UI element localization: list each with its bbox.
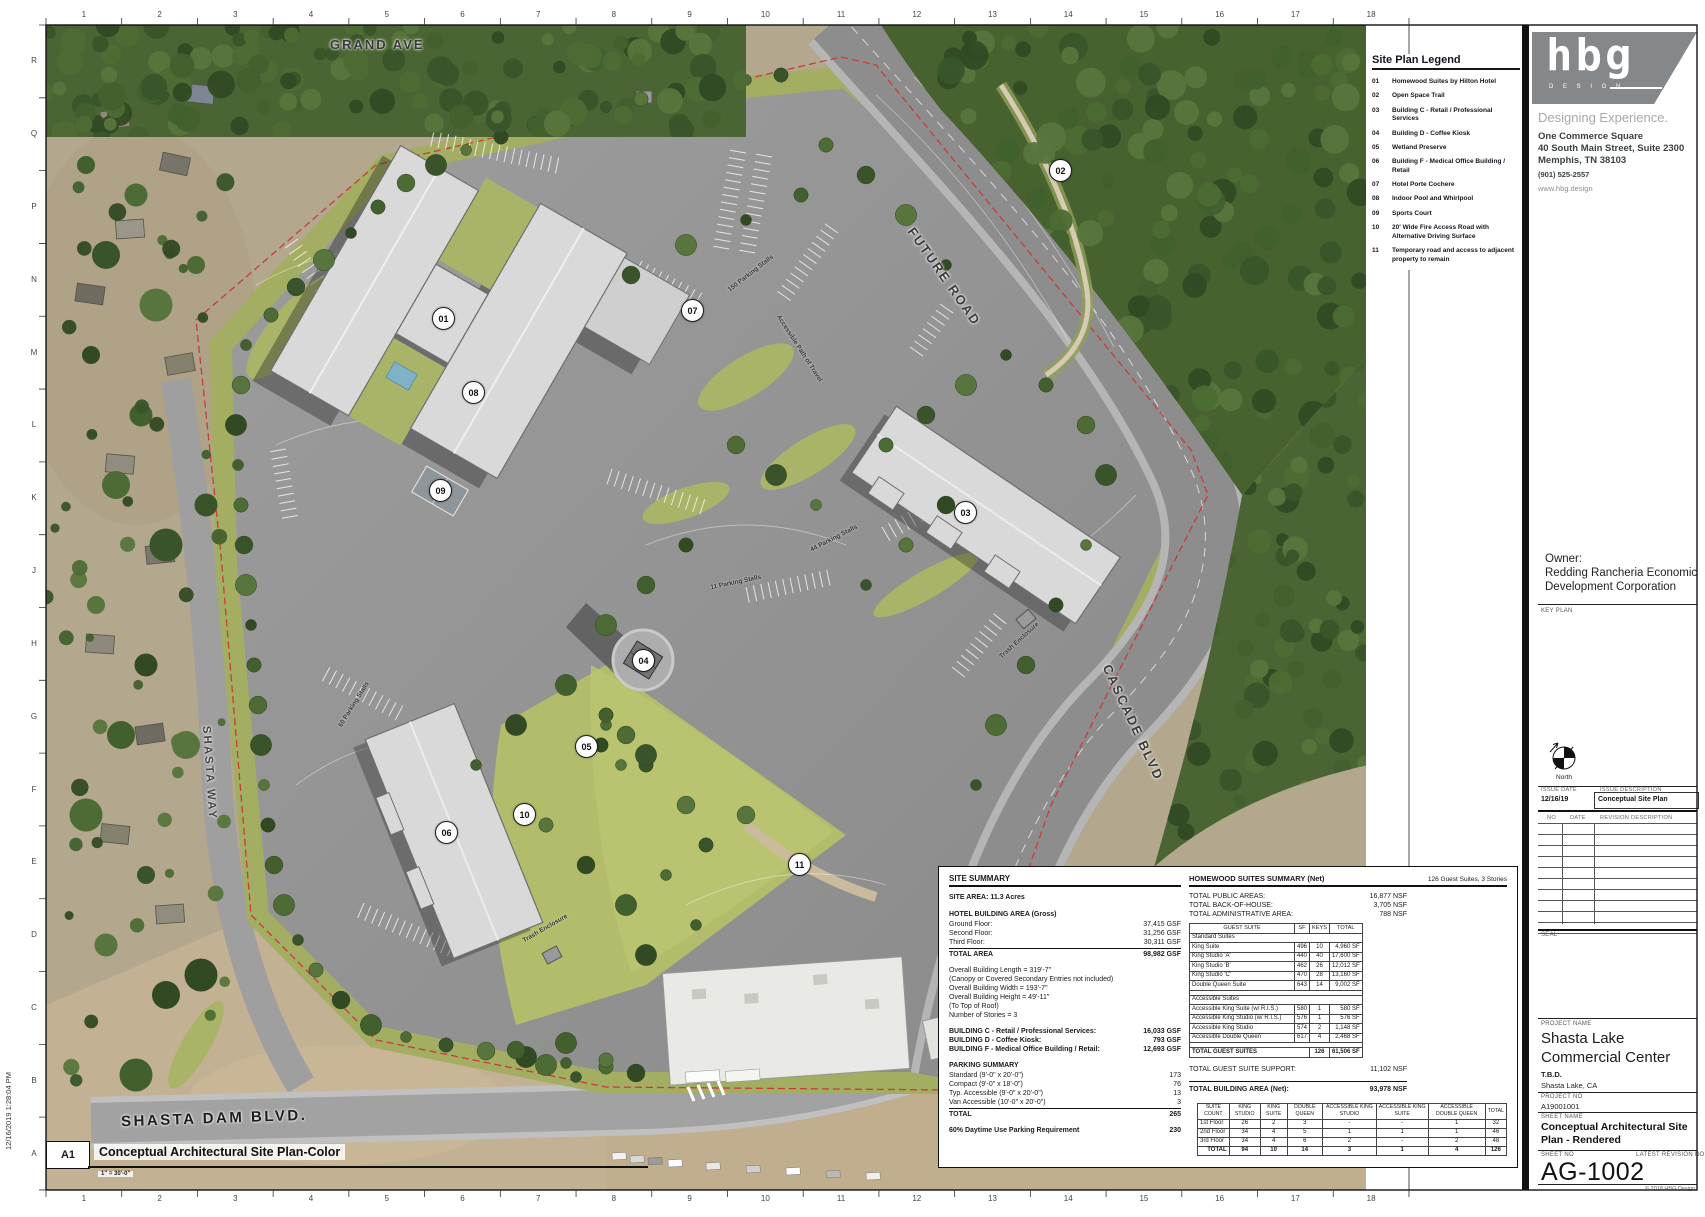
legend-item: 05Wetland Preserve [1372, 144, 1520, 153]
suite-count-cell: 48 [1485, 1137, 1506, 1146]
grid-col-label: 11 [833, 1194, 849, 1203]
suite-count-cell: 3rd Floor [1198, 1137, 1230, 1146]
guest-table-cell: 28 [1310, 971, 1330, 981]
hbg-logo-text: hbg [1546, 30, 1634, 81]
suite-count-cell: 5 [1287, 1128, 1322, 1137]
legend-item-label: Sports Court [1392, 210, 1520, 219]
grid-col-label: 4 [303, 1194, 319, 1203]
guest-table-header: KEYS [1310, 924, 1330, 934]
legend-item-number: 03 [1372, 107, 1392, 125]
legend-item-number: 09 [1372, 210, 1392, 219]
guest-table-row: King Suite496104,960 SF [1190, 943, 1363, 953]
grid-col-label: 12 [909, 10, 925, 19]
issue-date-header: ISSUE DATE [1541, 787, 1577, 793]
summary-label: TOTAL PUBLIC AREAS: [1189, 892, 1265, 901]
summary-value: 788 NSF [1379, 910, 1407, 919]
issue-date-value: 12/16/19 [1541, 796, 1568, 803]
revision-date-header: DATE [1570, 815, 1586, 821]
plan-marker: 01 [432, 307, 455, 330]
suite-count-cell: 1 [1376, 1128, 1428, 1137]
parking-total-value: 265 [1169, 1110, 1181, 1119]
guest-table-cell: Accessible King Studio [1190, 1024, 1295, 1034]
guest-table-row: Accessible King Studio57421,148 SF [1190, 1024, 1363, 1034]
grid-col-label: 13 [985, 1194, 1001, 1203]
suite-support-row: TOTAL GUEST SUITE SUPPORT: 11,102 NSF [1189, 1065, 1407, 1074]
legend-item-number: 08 [1372, 195, 1392, 204]
seal-label: SEAL [1541, 932, 1558, 938]
copyright: © 2018 HBG Design [1645, 1186, 1695, 1192]
key-plan-divider [1538, 604, 1697, 605]
guest-table-cell: King Suite [1190, 943, 1295, 953]
guest-table-cell: 1,148 SF [1329, 1024, 1362, 1034]
suite-count-row: 2nd Floor344511146 [1198, 1128, 1507, 1137]
hotel-area-header: HOTEL BUILDING AREA (Gross) [949, 910, 1181, 920]
summary-value: 37,415 GSF [1143, 920, 1181, 929]
dims-list: Overall Building Length = 319'-7"(Canopy… [949, 966, 1181, 1020]
project-tbd: T.B.D. [1541, 1070, 1562, 1079]
suite-count-cell: 1 [1376, 1146, 1428, 1155]
plan-marker: 08 [462, 381, 485, 404]
suite-count-cell: 1 [1428, 1119, 1485, 1128]
floors-rows: Ground Floor:37,415 GSFSecond Floor:31,2… [949, 920, 1181, 947]
suite-count-header: ACCESSIBLE DOUBLE QUEEN [1428, 1103, 1485, 1119]
owner-line2: Development Corporation [1545, 580, 1697, 594]
owner-line1: Redding Rancheria Economic [1545, 566, 1697, 580]
total-area-label: TOTAL AREA [949, 950, 993, 959]
summary-box: SITE SUMMARY SITE AREA: 11.3 Acres HOTEL… [938, 866, 1518, 1168]
plan-marker: 03 [954, 501, 977, 524]
guest-total-sf: 61,506 SF [1329, 1048, 1362, 1058]
daytime-value: 230 [1169, 1126, 1181, 1135]
guest-total-label: TOTAL GUEST SUITES [1190, 1048, 1310, 1058]
suite-count-cell: 126 [1485, 1146, 1506, 1155]
drawing-title-underline [88, 1166, 648, 1168]
grid-col-label: 16 [1212, 1194, 1228, 1203]
plan-marker: 10 [513, 803, 536, 826]
suite-count-cell: 6 [1287, 1137, 1322, 1146]
street-label: CASCADE BLVD [1100, 662, 1167, 783]
summary-value: 16,877 NSF [1370, 892, 1407, 901]
plan-marker: 11 [788, 853, 811, 876]
suite-count-cell: 3 [1287, 1119, 1322, 1128]
guest-table-header: SF [1295, 924, 1310, 934]
firm-address-line1: One Commerce Square [1538, 131, 1684, 143]
guest-table-cell: King Studio 'A' [1190, 952, 1295, 962]
summary-value: 31,256 GSF [1143, 929, 1181, 938]
guest-table-cell: 576 SF [1329, 1014, 1362, 1024]
suite-count-header: KING SUITE [1260, 1103, 1287, 1119]
summary-label: BUILDING D - Coffee Kiosk: [949, 1036, 1041, 1045]
guest-table-cell: 2,468 SF [1329, 1033, 1362, 1043]
project-location: Shasta Lake, CA [1541, 1081, 1597, 1090]
grid-col-label: 1 [76, 1194, 92, 1203]
summary-value: 16,033 GSF [1143, 1027, 1181, 1036]
guest-table-cell: 9,002 SF [1329, 981, 1362, 991]
summary-value: 3 [1177, 1098, 1181, 1107]
street-label: SHASTA DAM BLVD. [121, 1107, 308, 1130]
guest-table-cell: 574 [1295, 1024, 1310, 1034]
drawing-title: Conceptual Architectural Site Plan-Color [94, 1144, 345, 1160]
summary-row: BUILDING F - Medical Office Building / R… [949, 1045, 1181, 1054]
summary-row: TOTAL ADMINISTRATIVE AREA:788 NSF [1189, 910, 1407, 919]
plan-note: 44 Parking Stalls [809, 524, 859, 554]
issue-bottom-line [1538, 810, 1697, 812]
summary-value: 12,693 GSF [1143, 1045, 1181, 1054]
guest-total-keys: 126 [1310, 1048, 1330, 1058]
firm-website: www.hbg.design [1538, 184, 1593, 193]
suite-count-row: 1st Floor2623--132 [1198, 1119, 1507, 1128]
grid-col-label: 7 [530, 1194, 546, 1203]
project-no-label: PROJECT NO [1541, 1094, 1583, 1100]
suite-count-cell: 2 [1260, 1119, 1287, 1128]
summary-label: TOTAL ADMINISTRATIVE AREA: [1189, 910, 1293, 919]
street-label: FUTURE ROAD [905, 224, 984, 328]
plan-marker: 09 [429, 479, 452, 502]
suite-count-header: ACCESSIBLE KING STUDIO [1323, 1103, 1377, 1119]
guest-table-cell: 26 [1310, 962, 1330, 972]
project-name-label: PROJECT NAME [1541, 1021, 1592, 1027]
suite-count-cell: - [1323, 1119, 1377, 1128]
guest-table-row: King Studio 'C'4702813,160 SF [1190, 971, 1363, 981]
plan-note: Trash Enclosure [522, 913, 569, 944]
building-total-row: TOTAL BUILDING AREA (Net): 93,978 NSF [1189, 1081, 1407, 1094]
guest-table-cell: 40 [1310, 952, 1330, 962]
grid-row-label: Q [26, 129, 42, 138]
summary-label: Compact (9'-0" x 18'-0") [949, 1080, 1023, 1089]
legend-item-number: 05 [1372, 144, 1392, 153]
hbg-logo: hbg D E S I G N [1532, 32, 1697, 104]
suite-count-cell: 94 [1229, 1146, 1260, 1155]
plan-note: 150 Parking Stalls [727, 254, 775, 294]
grid-row-label: E [26, 857, 42, 866]
guest-table-cell: 13,160 SF [1329, 971, 1362, 981]
grid-row-label: D [26, 930, 42, 939]
grid-col-label: 8 [606, 10, 622, 19]
summary-label: Standard (9'-0" x 20'-0") [949, 1071, 1023, 1080]
grid-col-label: 11 [833, 10, 849, 19]
summary-label: Second Floor: [949, 929, 993, 938]
sheet-number: AG-1002 [1541, 1158, 1645, 1187]
suite-count-cell: 2 [1428, 1137, 1485, 1146]
suite-count-header: DOUBLE QUEEN [1287, 1103, 1322, 1119]
guest-table: GUEST SUITESFKEYSTOTALStandard SuitesKin… [1189, 923, 1363, 1058]
summary-label: Van Accessible (10'-0" x 20'-0") [949, 1098, 1046, 1107]
summary-dim: (To Top of Roof) [949, 1002, 1181, 1011]
summary-value: 76 [1173, 1080, 1181, 1089]
project-name: Shasta Lake Commercial Center [1541, 1029, 1699, 1067]
parking-total-row: TOTAL 265 [949, 1108, 1181, 1119]
north-arrow-icon [1544, 740, 1584, 774]
detail-reference: A1 [46, 1141, 90, 1169]
building-total-label: TOTAL BUILDING AREA (Net): [1189, 1085, 1289, 1094]
guest-table-cell: 462 [1295, 962, 1310, 972]
homewood-totals: TOTAL PUBLIC AREAS:16,877 NSFTOTAL BACK-… [1189, 892, 1407, 919]
plan-note: Trash Enclosure [998, 621, 1040, 660]
legend-item-number: 04 [1372, 130, 1392, 139]
plan-marker: 04 [632, 649, 655, 672]
suite-count-cell: 26 [1229, 1119, 1260, 1128]
guest-table-row: Accessible King Studio (w/ R.I.S.)576157… [1190, 1014, 1363, 1024]
homewood-subtitle: 126 Guest Suites, 3 Stories [1428, 876, 1507, 883]
grid-col-label: 4 [303, 10, 319, 19]
summary-dim: (Canopy or Covered Secondary Entries not… [949, 975, 1181, 984]
suite-count-cell: - [1376, 1119, 1428, 1128]
plan-note: Accessible Path of Travel [775, 314, 824, 384]
parking-total-label: TOTAL [949, 1110, 972, 1119]
legend-item-label: Building C - Retail / Professional Servi… [1392, 107, 1520, 125]
grid-col-label: 14 [1060, 1194, 1076, 1203]
suite-count-header: SUITE COUNT [1198, 1103, 1230, 1119]
legend-item-number: 06 [1372, 158, 1392, 176]
grid-col-label: 2 [152, 10, 168, 19]
summary-row: BUILDING D - Coffee Kiosk:793 GSF [949, 1036, 1181, 1045]
firm-phone: (901) 525-2557 [1538, 170, 1589, 179]
suite-support-label: TOTAL GUEST SUITE SUPPORT: [1189, 1065, 1296, 1074]
guest-table-cell: Accessible King Studio (w/ R.I.S.) [1190, 1014, 1295, 1024]
legend-item-label: Indoor Pool and Whirlpool [1392, 195, 1520, 204]
suite-count-cell: 4 [1260, 1128, 1287, 1137]
homewood-summary: HOMEWOOD SUITES SUMMARY (Net) 126 Guest … [1189, 874, 1507, 1156]
homewood-header: HOMEWOOD SUITES SUMMARY (Net) 126 Guest … [1189, 874, 1507, 887]
guest-table-cell: Accessible King Suite (w/ R.I.S.) [1190, 1005, 1295, 1015]
sheet-name-line [1538, 1112, 1697, 1113]
legend-item: 11Temporary road and access to adjacent … [1372, 247, 1520, 265]
grid-col-label: 17 [1287, 10, 1303, 19]
issue-desc-value: Conceptual Site Plan [1598, 796, 1668, 803]
grid-row-label: R [26, 56, 42, 65]
grid-col-label: 18 [1363, 1194, 1379, 1203]
total-area-row: TOTAL AREA 98,982 GSF [949, 948, 1181, 959]
legend-item: 07Hotel Porte Cochere [1372, 181, 1520, 190]
plan-marker: 02 [1049, 159, 1072, 182]
grid-row-label: N [26, 275, 42, 284]
grid-col-label: 6 [454, 10, 470, 19]
grid-col-label: 18 [1363, 10, 1379, 19]
summary-label: BUILDING C - Retail / Professional Servi… [949, 1027, 1096, 1036]
sheet-no-line [1538, 1150, 1697, 1151]
owner-label: Owner: [1545, 552, 1697, 566]
suite-count-cell: 34 [1229, 1137, 1260, 1146]
revision-no-header: NO [1547, 815, 1556, 821]
homewood-title: HOMEWOOD SUITES SUMMARY (Net) [1189, 874, 1324, 883]
legend-title: Site Plan Legend [1372, 54, 1520, 66]
legend-item: 06Building F - Medical Office Building /… [1372, 158, 1520, 176]
grid-row-label: J [26, 566, 42, 575]
suite-count-cell: - [1376, 1137, 1428, 1146]
guest-table-cell: 576 [1295, 1014, 1310, 1024]
summary-row: Ground Floor:37,415 GSF [949, 920, 1181, 929]
guest-table-cell: 643 [1295, 981, 1310, 991]
firm-address: One Commerce Square 40 South Main Street… [1538, 131, 1684, 167]
suite-count-cell: 34 [1229, 1128, 1260, 1137]
summary-row: Second Floor:31,256 GSF [949, 929, 1181, 938]
guest-table-cell: 4 [1310, 1033, 1330, 1043]
grid-col-label: 17 [1287, 1194, 1303, 1203]
street-label: SHASTA WAY [200, 726, 219, 821]
grid-col-label: 5 [379, 1194, 395, 1203]
suite-count-cell: 4 [1428, 1146, 1485, 1155]
grid-col-label: 1 [76, 10, 92, 19]
site-area: SITE AREA: 11.3 Acres [949, 893, 1181, 903]
summary-dim: Number of Stories = 3 [949, 1011, 1181, 1020]
suite-count-cell: 4 [1260, 1137, 1287, 1146]
grid-col-label: 9 [682, 10, 698, 19]
legend-divider [1372, 68, 1520, 70]
legend-item-label: Wetland Preserve [1392, 144, 1520, 153]
site-summary-title: SITE SUMMARY [949, 874, 1181, 887]
plan-note: 11 Parking Stalls [710, 574, 762, 592]
guest-table-cell: 496 [1295, 943, 1310, 953]
project-no-line [1538, 1092, 1697, 1093]
summary-value: 30,311 GSF [1144, 938, 1181, 947]
north-label: North [1544, 774, 1584, 781]
grid-col-label: 14 [1060, 10, 1076, 19]
legend-item-label: Hotel Porte Cochere [1392, 181, 1520, 190]
summary-dim: Overall Building Height = 49'-11" [949, 993, 1181, 1002]
project-no: A19001001 [1541, 1102, 1579, 1111]
grid-row-label: F [26, 785, 42, 794]
owner-block: Owner: Redding Rancheria Economic Develo… [1545, 552, 1697, 594]
firm-address-line2: 40 South Main Street, Suite 2300 [1538, 143, 1684, 155]
summary-label: BUILDING F - Medical Office Building / R… [949, 1045, 1100, 1054]
guest-table-cell: 14 [1310, 981, 1330, 991]
parking-rows: Standard (9'-0" x 20'-0")173Compact (9'-… [949, 1071, 1181, 1107]
summary-row: BUILDING C - Retail / Professional Servi… [949, 1027, 1181, 1036]
guest-table-cell: Double Queen Suite [1190, 981, 1295, 991]
suite-count-cell: 2nd Floor [1198, 1128, 1230, 1137]
daytime-row: 60% Daytime Use Parking Requirement 230 [949, 1126, 1181, 1135]
grid-col-label: 3 [227, 1194, 243, 1203]
parking-header: PARKING SUMMARY [949, 1061, 1181, 1071]
guest-table-cell: 12,012 SF [1329, 962, 1362, 972]
legend-item: 02Open Space Trail [1372, 92, 1520, 101]
drawing-sheet: 0102030405060708091011GRAND AVEFUTURE RO… [0, 0, 1705, 1217]
legend-item-label: 20' Wide Fire Access Road with Alternati… [1392, 224, 1520, 242]
site-plan-legend: Site Plan Legend 01Homewood Suites by Hi… [1372, 54, 1520, 270]
guest-table-cell: 1 [1310, 1005, 1330, 1015]
building-total-value: 93,978 NSF [1370, 1085, 1407, 1094]
summary-value: 173 [1169, 1071, 1181, 1080]
legend-item-number: 02 [1372, 92, 1392, 101]
sheet-name-label: SHEET NAME [1541, 1114, 1583, 1120]
suite-count-cell: 1 [1428, 1128, 1485, 1137]
seal-top-line [1538, 929, 1697, 931]
legend-item-label: Temporary road and access to adjacent pr… [1392, 247, 1520, 265]
drawing-scale: 1" = 30'-0" [98, 1171, 133, 1177]
latest-revision-label: LATEST REVISION NO [1636, 1152, 1705, 1158]
copyright-line [1538, 1184, 1697, 1185]
suite-count-header: TOTAL [1485, 1103, 1506, 1119]
guest-table-cell: 17,600 SF [1329, 952, 1362, 962]
grid-col-label: 15 [1136, 1194, 1152, 1203]
legend-items: 01Homewood Suites by Hilton Hotel02Open … [1372, 78, 1520, 264]
summary-value: 3,705 NSF [1374, 901, 1407, 910]
guest-table-row: Accessible Double Queen61742,468 SF [1190, 1033, 1363, 1043]
grid-row-label: M [26, 348, 42, 357]
grid-col-label: 12 [909, 1194, 925, 1203]
suite-count-cell: 3 [1323, 1146, 1377, 1155]
suite-count-header: KING STUDIO [1229, 1103, 1260, 1119]
key-plan-label: KEY PLAN [1541, 608, 1573, 614]
guest-table-row: Double Queen Suite643149,002 SF [1190, 981, 1363, 991]
legend-item-label: Building D - Coffee Kiosk [1392, 130, 1520, 139]
suite-count-cell: 32 [1485, 1119, 1506, 1128]
guest-table-cell: 440 [1295, 952, 1310, 962]
grid-row-label: C [26, 1003, 42, 1012]
guest-table-cell: 4,960 SF [1329, 943, 1362, 953]
sheet-name: Conceptual Architectural Site Plan - Ren… [1541, 1121, 1701, 1147]
guest-table-section: Accessible Suites [1190, 995, 1363, 1005]
legend-item-label: Building F - Medical Office Building / R… [1392, 158, 1520, 176]
grid-col-label: 5 [379, 10, 395, 19]
suite-count-table: SUITE COUNTKING STUDIOKING SUITEDOUBLE Q… [1197, 1103, 1507, 1156]
suite-count-header: ACCESSIBLE KING SUITE [1376, 1103, 1428, 1119]
grid-row-label: K [26, 493, 42, 502]
grid-row-label: G [26, 712, 42, 721]
grid-row-label: A [26, 1149, 42, 1158]
plan-note: 60 Parking Stalls [337, 681, 371, 729]
suite-count-cell: TOTAL [1198, 1146, 1230, 1155]
summary-row: TOTAL BACK-OF-HOUSE:3,705 NSF [1189, 901, 1407, 910]
legend-item-number: 07 [1372, 181, 1392, 190]
legend-item: 09Sports Court [1372, 210, 1520, 219]
grid-col-label: 13 [985, 10, 1001, 19]
grid-col-label: 8 [606, 1194, 622, 1203]
legend-item-label: Open Space Trail [1392, 92, 1520, 101]
grid-col-label: 16 [1212, 10, 1228, 19]
grid-row-label: P [26, 202, 42, 211]
grid-col-label: 7 [530, 10, 546, 19]
summary-dim: Overall Building Length = 319'-7" [949, 966, 1181, 975]
summary-row: Standard (9'-0" x 20'-0")173 [949, 1071, 1181, 1080]
hbg-logo-bar [1610, 87, 1662, 89]
grid-col-label: 6 [454, 1194, 470, 1203]
guest-table-cell: 617 [1295, 1033, 1310, 1043]
summary-value: 13 [1173, 1089, 1181, 1098]
suite-support-value: 11,102 NSF [1370, 1065, 1407, 1074]
summary-label: Typ. Accessible (9'-0" x 20'-0") [949, 1089, 1043, 1098]
guest-table-row: King Studio 'B'4622612,012 SF [1190, 962, 1363, 972]
grid-col-label: 2 [152, 1194, 168, 1203]
guest-table-cell: 10 [1310, 943, 1330, 953]
summary-label: Ground Floor: [949, 920, 992, 929]
grid-col-label: 3 [227, 10, 243, 19]
grid-col-label: 10 [757, 1194, 773, 1203]
plan-marker: 07 [681, 299, 704, 322]
guest-table-row: Accessible King Suite (w/ R.I.S.)5801580… [1190, 1005, 1363, 1015]
revision-col-divider [1562, 823, 1563, 924]
guest-table-cell: 580 SF [1329, 1005, 1362, 1015]
guest-table-cell: Accessible Double Queen [1190, 1033, 1295, 1043]
plot-timestamp: 12/16/2019 1:28:04 PM [4, 1072, 13, 1150]
guest-table-row: King Studio 'A'4404017,600 SF [1190, 952, 1363, 962]
street-label: GRAND AVE [330, 37, 425, 52]
grid-col-label: 9 [682, 1194, 698, 1203]
total-area-value: 98,982 GSF [1143, 950, 1181, 959]
firm-address-line3: Memphis, TN 38103 [1538, 155, 1684, 167]
suite-count-cell: 46 [1485, 1128, 1506, 1137]
legend-item: 08Indoor Pool and Whirlpool [1372, 195, 1520, 204]
suite-count-cell: 14 [1287, 1146, 1322, 1155]
legend-item-number: 10 [1372, 224, 1392, 242]
suite-count-row: TOTAL941014314126 [1198, 1146, 1507, 1155]
legend-item: 04Building D - Coffee Kiosk [1372, 130, 1520, 139]
guest-table-cell: King Studio 'B' [1190, 962, 1295, 972]
guest-table-total-row: TOTAL GUEST SUITES12661,506 SF [1190, 1048, 1363, 1058]
summary-label: Third Floor: [949, 938, 985, 947]
legend-item-label: Homewood Suites by Hilton Hotel [1392, 78, 1520, 87]
plan-marker: 05 [575, 735, 598, 758]
